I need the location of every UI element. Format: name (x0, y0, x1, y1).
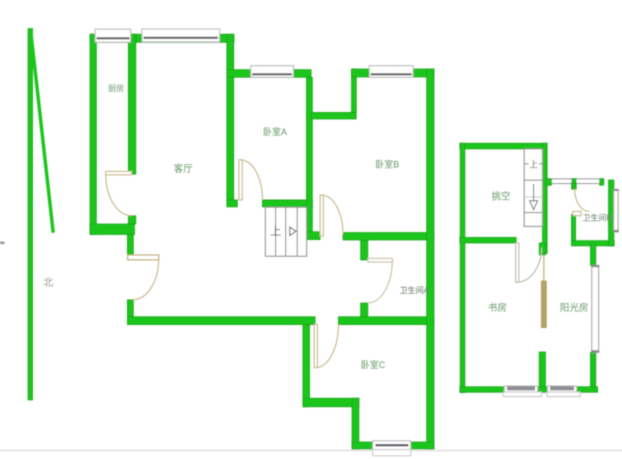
svg-text:卫生间B: 卫生间B (583, 213, 612, 223)
svg-text:上: 上 (270, 225, 282, 238)
svg-text:卧室C: 卧室C (361, 359, 386, 370)
svg-text:上: 上 (529, 159, 538, 169)
svg-text:挑空: 挑空 (491, 191, 510, 203)
svg-text:客厅: 客厅 (174, 163, 194, 175)
svg-text:厨房: 厨房 (108, 83, 124, 93)
svg-text:卧室A: 卧室A (263, 126, 287, 137)
svg-text:卫生间A: 卫生间A (400, 285, 430, 295)
svg-text:北: 北 (43, 277, 53, 289)
svg-text:书房: 书房 (488, 302, 507, 314)
svg-text:卧室B: 卧室B (375, 159, 399, 170)
svg-text:阳光房: 阳光房 (560, 302, 589, 314)
